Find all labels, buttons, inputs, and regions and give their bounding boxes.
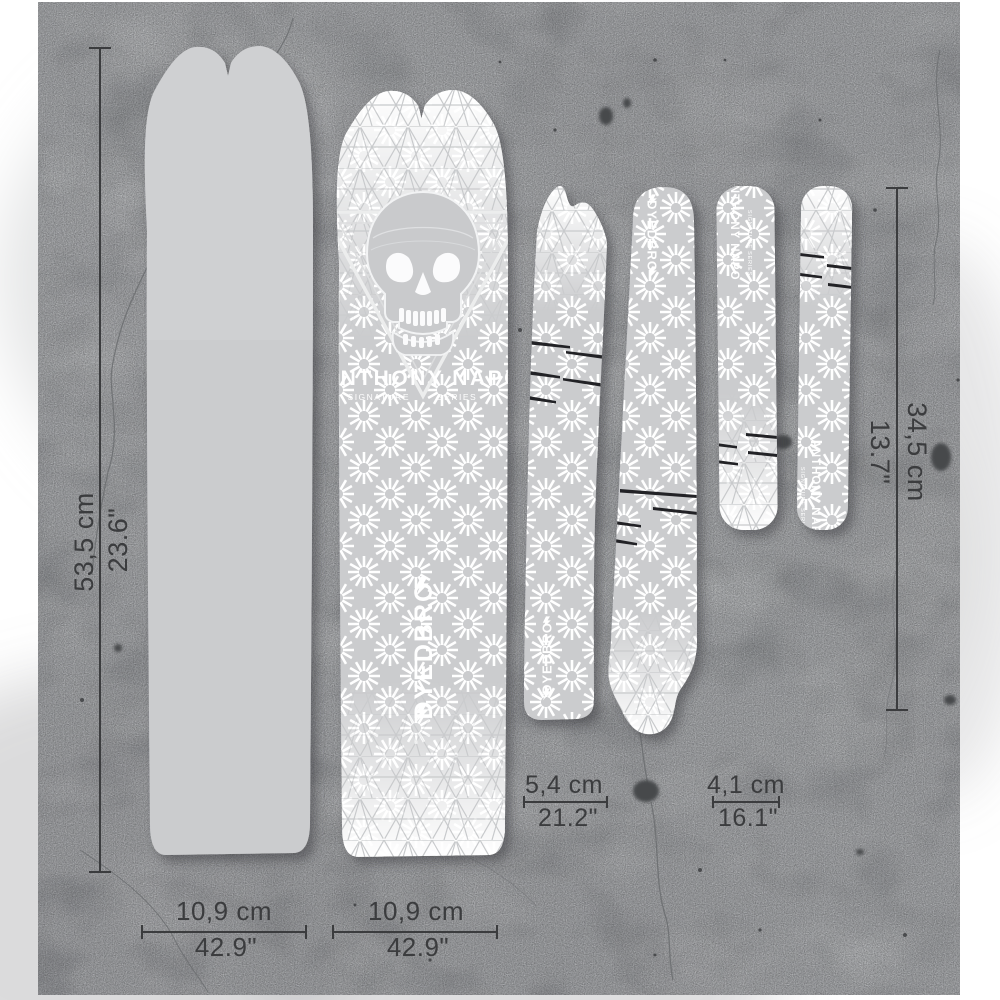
frame-protector-clear <box>140 40 320 860</box>
stay-width-cm: 5,4 cm <box>525 771 603 799</box>
fork-height-cm: 34,5 cm <box>902 402 932 502</box>
signature-label: SIGNATURE <box>348 392 410 402</box>
fork-height-in: 13.7" <box>865 420 895 485</box>
artist-name: ANTHONY NAPO <box>323 367 523 390</box>
printed-width-cm: 10,9 cm <box>368 896 464 926</box>
clear-width-in: 42.9" <box>195 932 257 962</box>
svg-text:ANTHONY NAPO: ANTHONY NAPO <box>728 175 740 280</box>
svg-text:SIGNATURE SERIES: SIGNATURE SERIES <box>746 210 752 276</box>
diagram-canvas: ANTHONY NAPO SIGNATURE SERIES DYEDBRO <box>0 0 1000 1000</box>
printed-width-in: 42.9" <box>387 932 449 962</box>
svg-text:DYEDBRO: DYEDBRO <box>645 200 660 272</box>
brand-logo-vertical: DYEDBRO <box>645 194 660 278</box>
stay-width-in: 21.2" <box>538 804 598 832</box>
frame-protector-printed: ANTHONY NAPO SIGNATURE SERIES DYEDBRO <box>323 85 523 865</box>
fork-width-cm: 4,1 cm <box>707 771 785 799</box>
fork-width-in: 16.1" <box>718 804 778 832</box>
product-size-diagram: ANTHONY NAPO SIGNATURE SERIES DYEDBRO <box>0 0 1000 1000</box>
brand-logo-vertical: DYEDBRO <box>410 577 438 723</box>
svg-text:DYEDBRO: DYEDBRO <box>410 580 438 719</box>
frame-height-in: 23.6" <box>103 508 133 573</box>
series-label: SERIES <box>437 392 477 402</box>
fork-protector-left: ANTHONY NAPO SIGNATURE SERIES <box>710 175 785 536</box>
frame-height-cm: 53,5 cm <box>69 492 99 592</box>
clear-width-cm: 10,9 cm <box>176 896 272 926</box>
brand-logo-vertical: DYEDBRO <box>540 616 555 700</box>
svg-text:DYEDBRO: DYEDBRO <box>540 622 555 694</box>
